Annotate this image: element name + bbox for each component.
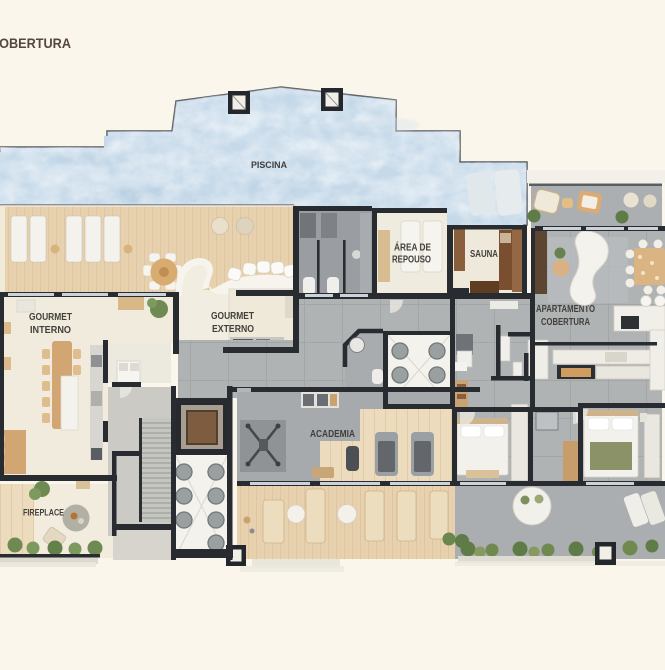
svg-text:COBERTURA: COBERTURA — [0, 35, 71, 51]
svg-text:ACADEMIA: ACADEMIA — [310, 428, 355, 440]
svg-text:GOURMET: GOURMET — [211, 310, 254, 322]
svg-text:EXTERNO: EXTERNO — [212, 323, 254, 335]
svg-text:COBERTURA: COBERTURA — [541, 316, 590, 328]
svg-text:FIREPLACE: FIREPLACE — [23, 508, 64, 519]
svg-text:ÁREA DE: ÁREA DE — [394, 241, 431, 254]
svg-text:GOURMET: GOURMET — [29, 311, 72, 323]
svg-text:PISCINA: PISCINA — [251, 160, 287, 171]
svg-text:INTERNO: INTERNO — [30, 324, 71, 336]
svg-text:REPOUSO: REPOUSO — [392, 255, 431, 266]
svg-text:SAUNA: SAUNA — [470, 249, 498, 260]
